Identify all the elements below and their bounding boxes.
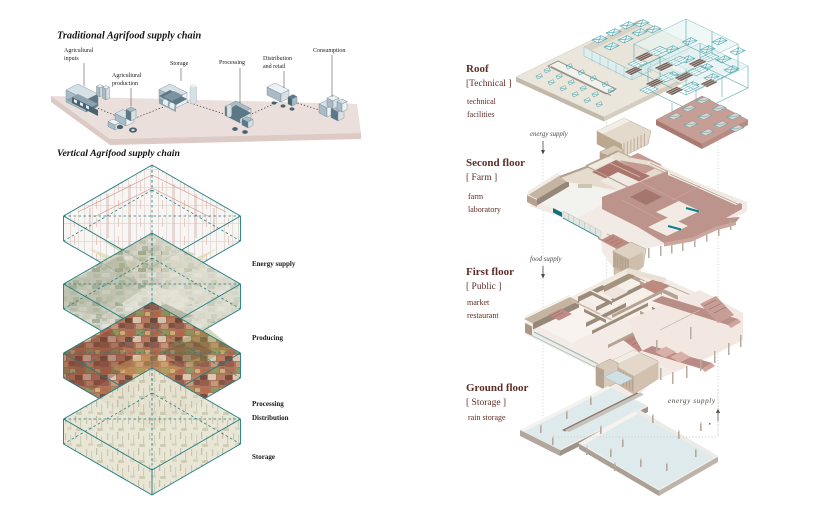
svg-text:Agricultural: Agricultural [112,73,142,79]
svg-text:Ground floor: Ground floor [466,382,529,394]
svg-text:Vertical Agrifood supply chain: Vertical Agrifood supply chain [57,148,180,159]
svg-text:and retail: and retail [263,64,286,70]
svg-text:[ Public ]: [ Public ] [466,282,501,292]
svg-text:Distribution: Distribution [252,414,289,422]
svg-text:Storage: Storage [252,453,275,461]
svg-text:Producing: Producing [252,334,283,342]
svg-text:inputs: inputs [64,56,79,62]
svg-text:rain storage: rain storage [468,413,506,422]
svg-text:First floor: First floor [466,266,514,278]
svg-text:laboratory: laboratory [468,205,501,214]
svg-text:technical: technical [467,97,497,106]
svg-text:[Technical ]: [Technical ] [466,79,512,89]
svg-text:food supply: food supply [530,256,563,263]
svg-text:energy supply: energy supply [668,397,716,405]
svg-text:Storage: Storage [170,61,189,67]
svg-text:production: production [112,81,138,87]
svg-text:Processing: Processing [252,400,284,408]
svg-text:restaurant: restaurant [467,311,499,320]
svg-text:[ Storage ]: [ Storage ] [466,398,506,408]
svg-text:energy supply: energy supply [530,131,569,138]
svg-text:Processing: Processing [219,60,245,66]
svg-text:farm: farm [468,192,484,201]
svg-text:Consumption: Consumption [313,48,345,54]
svg-text:market: market [467,298,490,307]
svg-text:[ Farm ]: [ Farm ] [466,173,497,183]
svg-text:Traditional Agrifood supply ch: Traditional Agrifood supply chain [57,31,202,42]
svg-text:Distribution: Distribution [263,56,292,62]
svg-text:Roof: Roof [466,63,489,75]
svg-text:facilities: facilities [467,110,495,119]
svg-text:Agricultural: Agricultural [64,48,94,54]
svg-text:Second floor: Second floor [466,157,525,169]
svg-text:Energy supply: Energy supply [252,260,296,268]
